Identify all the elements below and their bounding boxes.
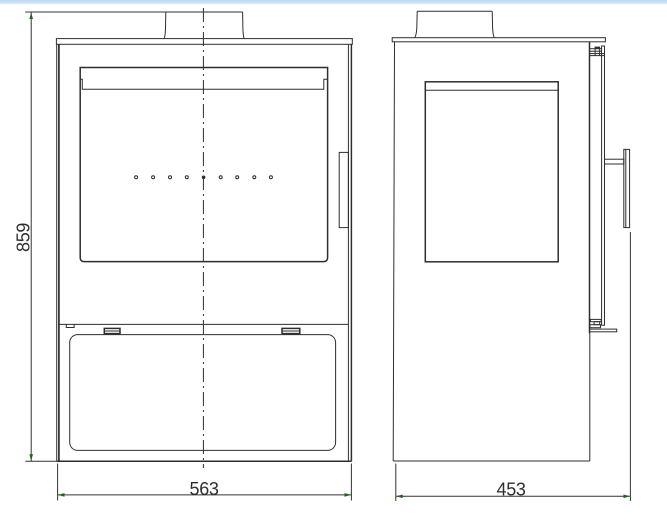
svg-text:859: 859: [14, 223, 34, 252]
svg-text:563: 563: [190, 479, 219, 499]
svg-text:453: 453: [497, 480, 526, 500]
